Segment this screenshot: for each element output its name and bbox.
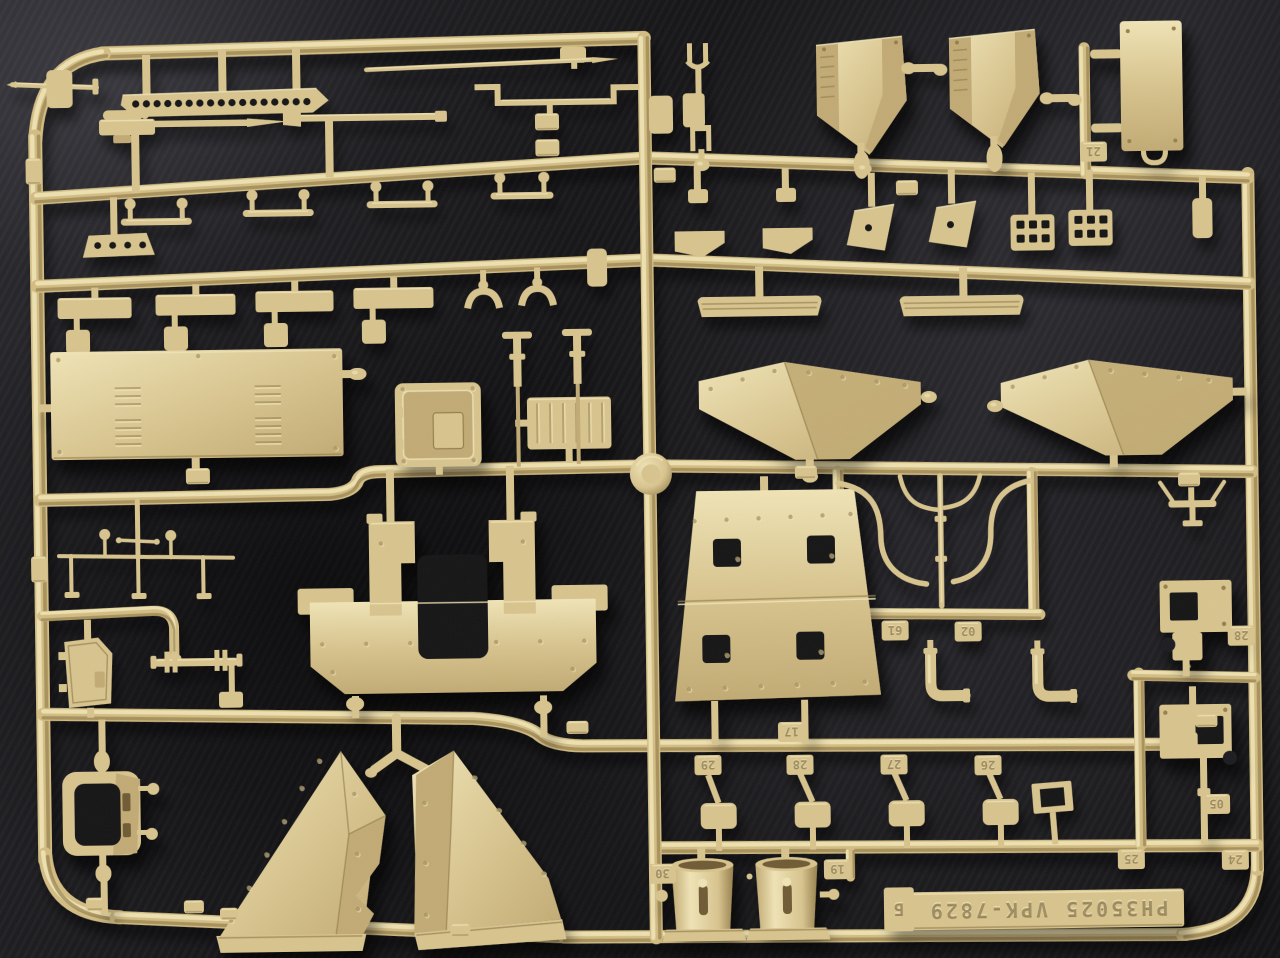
film-grain-overlay <box>0 0 1280 958</box>
sprue-photo: 2929282827272626252524243030191961610202… <box>0 0 1280 958</box>
photo-stage: 2929282827272626252524243030191961610202… <box>0 0 1280 958</box>
